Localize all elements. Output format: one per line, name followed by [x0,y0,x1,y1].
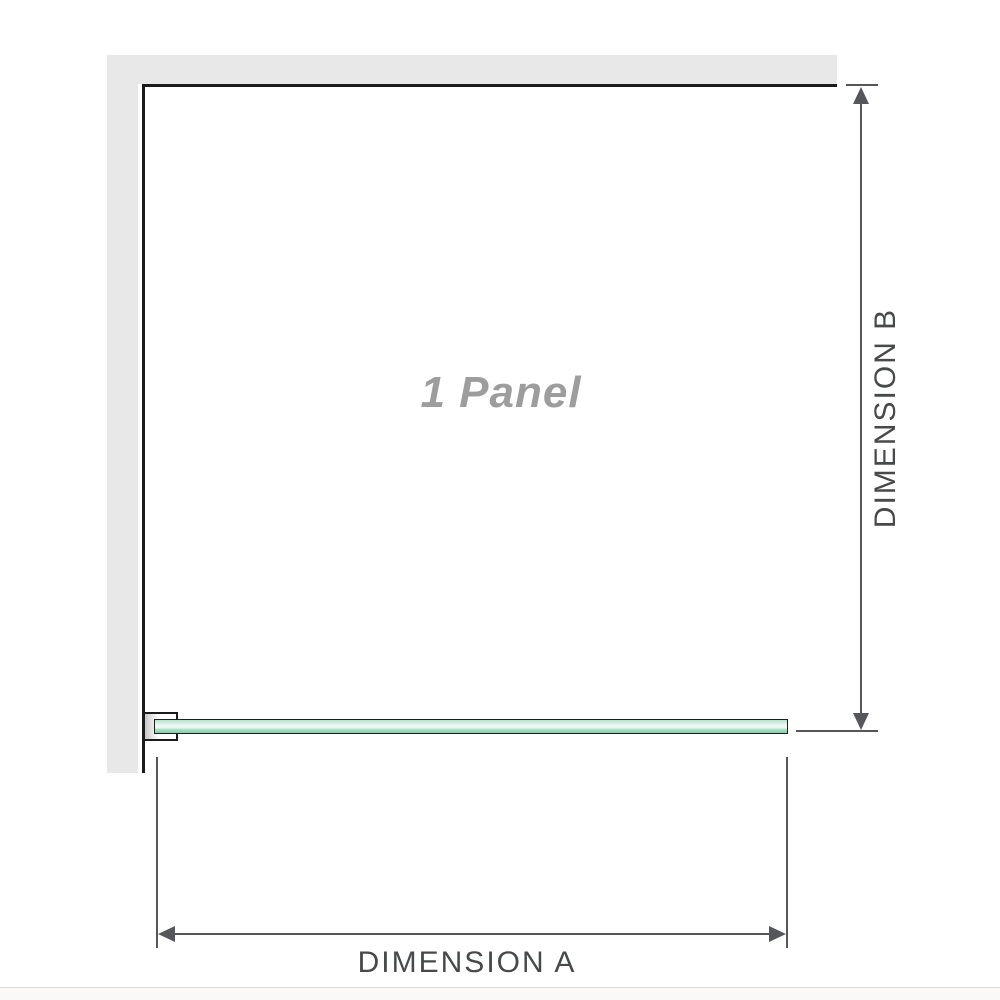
dimension-b-tick-top [846,84,878,86]
dimension-a-extension-line-left [156,757,158,948]
dimension-a-arrowhead-left-icon [158,926,175,942]
dimension-b-label: DIMENSION B [869,268,899,568]
panel-dimension-diagram: 1 Panel DIMENSION A DIMENSION B [0,0,1000,1000]
panel-count-label: 1 Panel [351,368,651,418]
dimension-b-arrowhead-up-icon [853,87,869,104]
glass-panel-bar [154,719,788,734]
wall-top-strip [107,55,837,84]
dimension-a-extension-line-right [786,757,788,948]
panel-area-top-border [142,84,837,87]
panel-area-left-border [142,84,145,773]
dimension-a-arrow-line [170,933,774,935]
wall-left-strip [107,55,138,773]
dimension-a-arrowhead-right-icon [769,926,786,942]
footer-strip [0,988,1000,1000]
dimension-b-tick-bottom [796,730,878,732]
dimension-b-arrow-line [860,92,862,722]
dimension-a-label: DIMENSION A [317,946,617,980]
dimension-b-arrowhead-down-icon [853,713,869,730]
